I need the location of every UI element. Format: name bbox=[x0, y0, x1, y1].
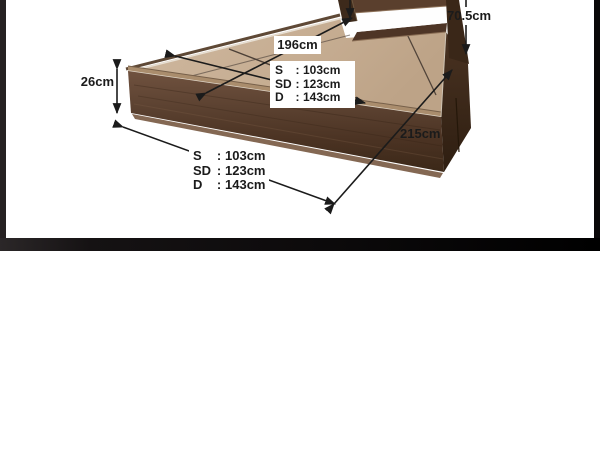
size-key: S bbox=[193, 149, 215, 164]
photo-left-border bbox=[0, 0, 6, 238]
size-block-bottom: S : 103cm SD : 123cm D : 143cm bbox=[189, 148, 269, 195]
size-box-on-deck: S : 103cm SD : 123cm D : 143cm bbox=[270, 61, 355, 108]
size-key: SD bbox=[275, 78, 294, 92]
size-key: D bbox=[193, 178, 215, 193]
size-key: SD bbox=[193, 164, 215, 179]
size-row: D : 143cm bbox=[275, 91, 351, 105]
size-value: 143cm bbox=[303, 91, 340, 105]
size-colon: : bbox=[294, 78, 301, 92]
photo-bottom-border-bar bbox=[0, 238, 600, 251]
size-colon: : bbox=[215, 149, 223, 164]
size-row: SD : 123cm bbox=[193, 164, 265, 179]
bed-diagram-area: cm 70.5cm 26cm 196cm S : 103cm SD : 123c… bbox=[0, 0, 600, 238]
product-dimension-image: cm 70.5cm 26cm 196cm S : 103cm SD : 123c… bbox=[0, 0, 600, 461]
label-frame-height: 26cm bbox=[80, 74, 114, 89]
label-length: 215cm bbox=[400, 126, 440, 141]
size-colon: : bbox=[215, 178, 223, 193]
blank-area-below bbox=[0, 251, 600, 461]
label-inner-length-box: 196cm bbox=[274, 36, 321, 54]
size-value: 143cm bbox=[225, 178, 265, 193]
size-key: S bbox=[275, 64, 294, 78]
size-colon: : bbox=[294, 91, 301, 105]
size-row: D : 143cm bbox=[193, 178, 265, 193]
size-row: S : 103cm bbox=[275, 64, 351, 78]
size-value: 123cm bbox=[303, 78, 340, 92]
size-value: 103cm bbox=[225, 149, 265, 164]
size-key: D bbox=[275, 91, 294, 105]
label-headboard-height: 70.5cm bbox=[447, 8, 491, 23]
photo-right-border bbox=[594, 0, 600, 238]
size-colon: : bbox=[294, 64, 301, 78]
size-colon: : bbox=[215, 164, 223, 179]
size-row: SD : 123cm bbox=[275, 78, 351, 92]
size-row: S : 103cm bbox=[193, 149, 265, 164]
size-value: 123cm bbox=[225, 164, 265, 179]
size-value: 103cm bbox=[303, 64, 340, 78]
label-top-clipped: cm bbox=[328, 0, 374, 3]
